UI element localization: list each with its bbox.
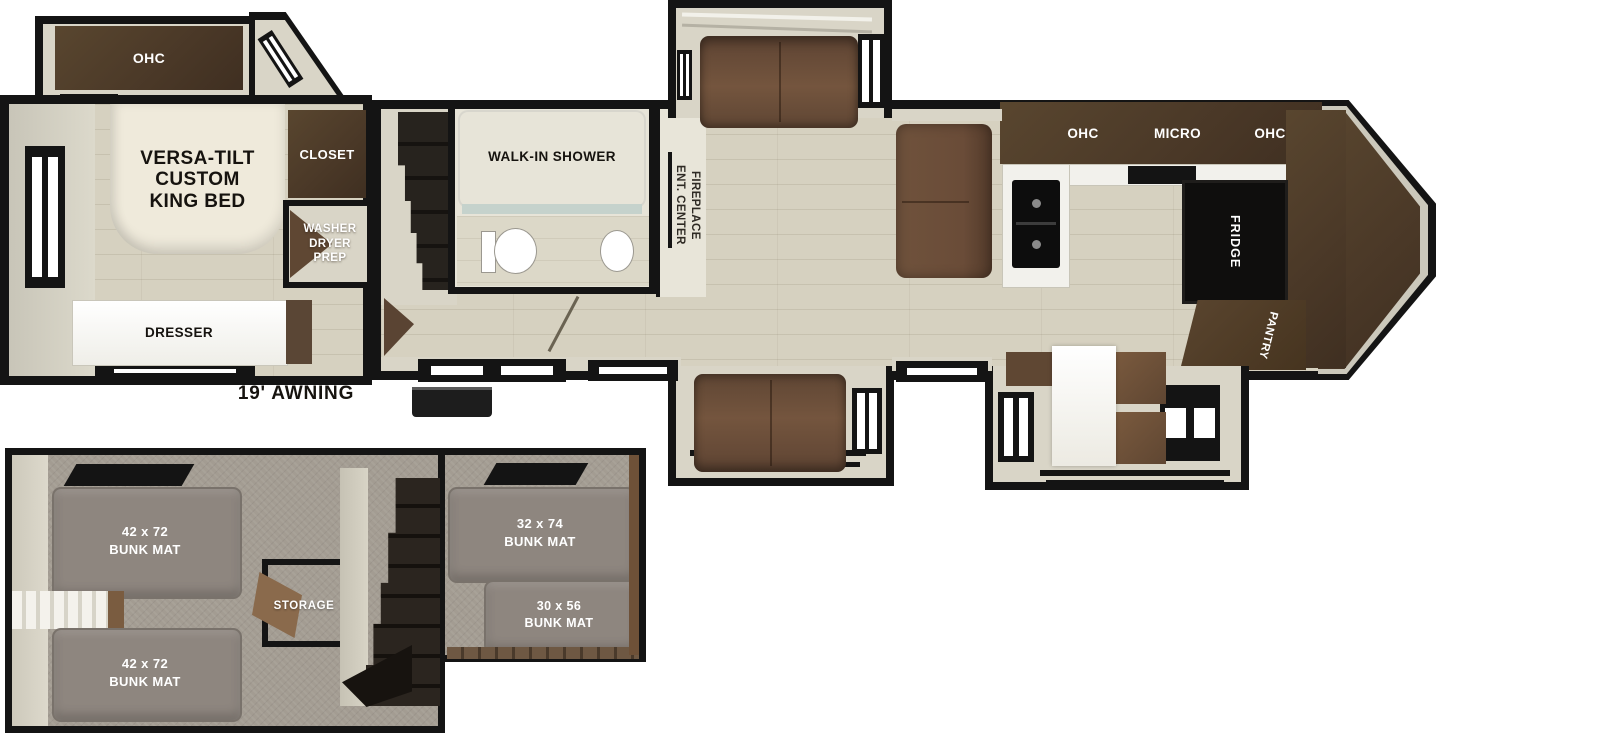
micro-label: MICRO (1130, 102, 1225, 164)
king-bed-label: VERSA-TILT CUSTOM KING BED (110, 135, 285, 225)
pantry (1180, 300, 1306, 370)
window (998, 392, 1034, 462)
rv-floorplan: OHC VERSA-TILT CUSTOM KING BED CLOSET WA… (0, 0, 1600, 748)
toilet (481, 228, 535, 274)
shower-label: WALK-IN SHOWER (458, 110, 646, 202)
sofa-bottom (694, 374, 846, 472)
window (588, 360, 678, 381)
roof-vent (64, 464, 195, 486)
bathroom-sink (600, 230, 634, 272)
bunk-ladder (12, 591, 110, 629)
kitchen-sink (1012, 180, 1060, 268)
awning-label: 19' AWNING (196, 383, 396, 405)
loft-railing (447, 647, 639, 659)
closet-label: CLOSET (288, 110, 366, 198)
stairwell-wall (340, 468, 368, 706)
roof-vent (484, 463, 589, 485)
dinette-chair (1006, 352, 1052, 386)
bunk-mat-label: 42 x 72 BUNK MAT (52, 628, 238, 718)
bunk-mat-label: 32 x 74 BUNK MAT (448, 487, 632, 579)
window (896, 361, 988, 382)
window (1160, 385, 1220, 461)
window (95, 366, 255, 376)
shower-glass (462, 204, 642, 214)
window (852, 388, 882, 454)
dinette-table (1052, 346, 1116, 466)
dresser-label: DRESSER (72, 300, 286, 364)
slideout-sill (1040, 470, 1230, 476)
loveseat (896, 124, 992, 278)
window (418, 359, 566, 382)
bunk-mat-label: 42 x 72 BUNK MAT (52, 487, 238, 595)
washer-dryer-label: WASHER DRYER PREP (291, 206, 369, 282)
window (25, 146, 65, 288)
hutch-lower (1116, 412, 1166, 464)
bunkroom-right-wall (629, 455, 639, 655)
entry-step (412, 387, 492, 417)
kitchen-ohc-left-label: OHC (1038, 102, 1128, 164)
dresser-side-cabinet (286, 300, 312, 364)
ent-center-label: ENT. CENTER FIREPLACE (672, 140, 702, 270)
bunk-ladder-end (108, 591, 124, 629)
window (858, 34, 884, 108)
fridge-label: FRIDGE (1222, 188, 1248, 296)
slideout-sill (1046, 480, 1224, 485)
storage-label: STORAGE (258, 598, 350, 614)
bedroom-ohc-label: OHC (55, 26, 243, 90)
hutch-upper (1116, 352, 1166, 404)
window (677, 50, 692, 100)
bunk-mat-label: 30 x 56 BUNK MAT (484, 580, 634, 650)
sofa-top (700, 36, 858, 128)
top-wall (892, 109, 1002, 121)
